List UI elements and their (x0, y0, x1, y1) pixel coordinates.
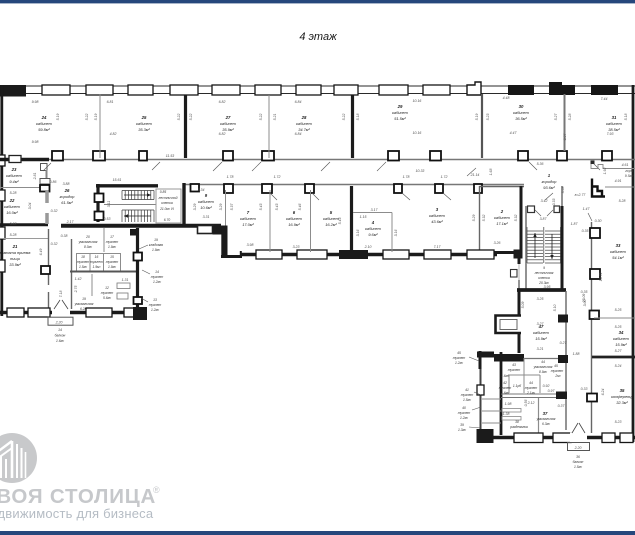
svg-text:5.22: 5.22 (85, 114, 89, 121)
svg-text:1.5м²: 1.5м² (574, 465, 583, 469)
svg-text:10.6м²: 10.6м² (200, 205, 212, 210)
svg-text:4.91: 4.91 (615, 179, 622, 183)
svg-text:туалет: туалет (101, 291, 114, 295)
svg-text:0.86: 0.86 (50, 180, 57, 184)
svg-text:1.1рб: 1.1рб (513, 384, 521, 388)
svg-text:10.16: 10.16 (413, 99, 422, 103)
svg-text:1.2м²: 1.2м² (151, 308, 160, 312)
svg-text:6.81: 6.81 (107, 100, 114, 104)
svg-text:клетка: клетка (161, 201, 173, 205)
svg-text:6.84: 6.84 (295, 100, 302, 104)
svg-text:3.16: 3.16 (394, 230, 398, 237)
svg-text:24: 24 (41, 115, 47, 120)
svg-text:37: 37 (543, 411, 548, 416)
svg-text:7.18: 7.18 (59, 291, 63, 298)
svg-text:39: 39 (460, 423, 464, 427)
svg-text:16.9м²: 16.9м² (288, 222, 300, 227)
svg-text:1.38: 1.38 (503, 412, 510, 416)
svg-text:5.46: 5.46 (298, 204, 302, 211)
svg-text:умывальная: умывальная (78, 240, 98, 244)
svg-text:5.19: 5.19 (475, 114, 479, 121)
svg-text:38: 38 (515, 420, 519, 424)
svg-text:25: 25 (141, 115, 147, 120)
svg-text:туалет: туалет (551, 369, 564, 373)
svg-text:2.1м²: 2.1м² (526, 391, 536, 395)
svg-text:6.84: 6.84 (295, 132, 302, 136)
svg-text:1.5м²: 1.5м² (463, 398, 472, 402)
svg-text:3.42: 3.42 (541, 199, 548, 203)
svg-text:1.6м²: 1.6м² (501, 374, 510, 378)
svg-text:33: 33 (616, 243, 621, 248)
svg-text:15.9м²: 15.9м² (535, 336, 547, 341)
svg-text:30: 30 (519, 104, 524, 109)
svg-text:5.09: 5.09 (521, 302, 525, 309)
svg-text:1.87: 1.87 (571, 222, 579, 226)
svg-text:1.42: 1.42 (75, 277, 82, 281)
svg-text:кладовая: кладовая (149, 243, 163, 247)
svg-text:5.29: 5.29 (472, 215, 476, 222)
svg-text:туалет: туалет (508, 368, 521, 372)
svg-text:5.28: 5.28 (10, 191, 17, 195)
svg-text:9.6м²: 9.6м² (368, 232, 378, 237)
svg-text:59.8м²: 59.8м² (38, 127, 50, 132)
svg-text:27: 27 (225, 115, 231, 120)
svg-text:5.27: 5.27 (615, 349, 623, 353)
svg-text:6.82: 6.82 (219, 132, 226, 136)
svg-text:0.53: 0.53 (104, 217, 111, 221)
svg-text:3.04: 3.04 (28, 203, 32, 210)
svg-text:1.9м²: 1.9м² (108, 245, 117, 249)
svg-text:54.1м²: 54.1м² (612, 255, 624, 260)
svg-text:кабинет: кабинет (429, 213, 446, 218)
svg-text:5.19: 5.19 (94, 114, 98, 121)
svg-text:3.68: 3.68 (561, 187, 565, 194)
svg-text:5.18: 5.18 (624, 114, 628, 121)
svg-text:9: 9 (543, 266, 545, 270)
svg-text:5.10: 5.10 (553, 305, 557, 312)
svg-text:1.9м²: 1.9м² (93, 265, 102, 269)
svg-text:1.9м²: 1.9м² (108, 265, 117, 269)
svg-text:3.26: 3.26 (494, 241, 501, 245)
svg-text:комната приема: комната приема (0, 250, 31, 255)
svg-text:61.5м²: 61.5м² (61, 200, 73, 205)
svg-text:5.28: 5.28 (619, 199, 626, 203)
svg-text:туалет: туалет (499, 386, 512, 390)
svg-text:16.0м²: 16.0м² (6, 210, 18, 215)
svg-text:5.32: 5.32 (482, 215, 486, 222)
svg-text:36.5м²: 36.5м² (515, 116, 527, 121)
svg-text:клетка: клетка (538, 276, 550, 280)
svg-text:5.23: 5.23 (615, 420, 622, 424)
svg-text:3.29: 3.29 (219, 204, 223, 211)
svg-text:5.22: 5.22 (342, 114, 346, 121)
svg-text:17.0м²: 17.0м² (242, 222, 254, 227)
svg-text:конференц-: конференц- (611, 394, 633, 399)
svg-text:умывальная: умывальная (74, 302, 94, 306)
svg-text:кабинет: кабинет (6, 173, 23, 178)
svg-text:1.72: 1.72 (274, 175, 281, 179)
svg-text:1.15: 1.15 (360, 215, 367, 219)
svg-text:0.27: 0.27 (560, 341, 568, 345)
svg-text:7.93: 7.93 (607, 132, 614, 136)
svg-text:9.5м²: 9.5м² (625, 174, 634, 178)
svg-text:3.95: 3.95 (544, 285, 551, 289)
svg-text:14: 14 (58, 328, 62, 332)
svg-text:13: 13 (153, 298, 157, 302)
svg-text:11.53: 11.53 (166, 154, 175, 158)
svg-text:5.6м²: 5.6м² (103, 296, 112, 300)
svg-text:туалет: туалет (90, 260, 103, 264)
svg-text:1.88: 1.88 (573, 352, 580, 356)
svg-text:2.20: 2.20 (55, 321, 63, 325)
svg-text:5.21: 5.21 (273, 114, 277, 121)
svg-text:кабинет: кабинет (36, 121, 53, 126)
svg-text:5.27: 5.27 (554, 113, 558, 121)
svg-text:5.22: 5.22 (189, 114, 193, 121)
svg-text:5.43: 5.43 (338, 218, 342, 225)
svg-text:раздевалка: раздевалка (509, 425, 528, 429)
svg-text:5.19: 5.19 (56, 114, 60, 121)
svg-text:кабинет: кабинет (610, 249, 627, 254)
svg-text:10.16: 10.16 (413, 131, 422, 135)
svg-text:3.98: 3.98 (247, 243, 254, 247)
svg-text:5.22: 5.22 (259, 114, 263, 121)
svg-text:кабинет: кабинет (613, 336, 630, 341)
svg-text:8.9м²: 8.9м² (539, 370, 548, 374)
svg-text:43: 43 (512, 363, 516, 367)
svg-text:1.9м²: 1.9м² (152, 248, 161, 252)
svg-text:2.20: 2.20 (574, 446, 582, 450)
svg-text:1.72: 1.72 (441, 175, 448, 179)
svg-text:1.78: 1.78 (227, 175, 234, 179)
svg-text:0.92: 0.92 (543, 384, 550, 388)
svg-text:туалет: туалет (149, 303, 162, 307)
svg-text:33.9м²: 33.9м² (9, 262, 21, 267)
svg-text:12: 12 (105, 286, 109, 290)
svg-text:0.07: 0.07 (563, 133, 567, 141)
svg-text:коридор: коридор (60, 194, 76, 199)
svg-text:4.47: 4.47 (510, 131, 518, 135)
svg-text:кабинет: кабинет (296, 121, 313, 126)
svg-text:9.4м²: 9.4м² (9, 179, 19, 184)
svg-text:2.75: 2.75 (74, 286, 78, 294)
svg-text:34: 34 (619, 330, 624, 335)
svg-text:1.47: 1.47 (583, 207, 591, 211)
svg-text:1.5м²: 1.5м² (79, 265, 88, 269)
svg-text:кабинет: кабинет (365, 226, 382, 231)
svg-text:0.35: 0.35 (581, 290, 588, 294)
svg-text:3.88: 3.88 (63, 182, 70, 186)
svg-text:16.2м²: 16.2м² (325, 222, 337, 227)
svg-text:0.38: 0.38 (61, 234, 68, 238)
svg-text:3.27: 3.27 (537, 322, 545, 326)
svg-text:кабинет: кабинет (533, 330, 550, 335)
svg-text:1.2м²: 1.2м² (153, 280, 162, 284)
svg-text:3.00: 3.00 (583, 300, 587, 307)
svg-text:22: 22 (9, 198, 15, 203)
svg-text:18: 18 (81, 255, 85, 259)
svg-text:туалет: туалет (106, 260, 119, 264)
svg-text:1.78: 1.78 (403, 175, 410, 179)
svg-text:5.23: 5.23 (486, 114, 490, 121)
svg-text:23: 23 (11, 167, 17, 172)
svg-text:кабинет: кабинет (392, 110, 409, 115)
svg-text:0.35: 0.35 (582, 229, 589, 233)
svg-text:51.5м²: 51.5м² (394, 116, 406, 121)
svg-text:1.3м²: 1.3м² (458, 428, 467, 432)
svg-text:5.25: 5.25 (615, 308, 622, 312)
svg-text:35.3м²: 35.3м² (138, 127, 150, 132)
svg-text:3.25: 3.25 (537, 297, 544, 301)
svg-text:35: 35 (620, 388, 625, 393)
svg-text:40: 40 (462, 406, 466, 410)
svg-text:6.24: 6.24 (601, 389, 605, 396)
svg-text:2.17: 2.17 (66, 220, 75, 224)
svg-text:5.28: 5.28 (10, 222, 17, 226)
svg-text:туалет: туалет (106, 240, 119, 244)
svg-text:5.24: 5.24 (615, 364, 622, 368)
svg-text:43.6м²: 43.6м² (431, 219, 443, 224)
svg-text:1.6м²: 1.6м² (56, 339, 65, 343)
svg-text:горб: горб (625, 169, 634, 173)
svg-text:туалет: туалет (525, 386, 538, 390)
svg-text:туалет: туалет (458, 411, 471, 415)
svg-text:10.33: 10.33 (416, 169, 425, 173)
svg-text:93.6м²: 93.6м² (543, 185, 555, 190)
svg-text:21.14: 21.14 (470, 173, 480, 177)
svg-text:туалет: туалет (453, 356, 466, 360)
svg-text:3.21: 3.21 (537, 347, 544, 351)
svg-text:9.98: 9.98 (32, 100, 39, 104)
svg-text:2.81: 2.81 (33, 173, 37, 181)
svg-text:0.33: 0.33 (581, 387, 588, 391)
svg-text:умывальная: умывальная (533, 365, 553, 369)
svg-text:4.48: 4.48 (503, 96, 510, 100)
svg-text:6.49: 6.49 (39, 249, 43, 256)
svg-text:кабинет: кабинет (513, 110, 530, 115)
svg-text:0.30: 0.30 (595, 219, 602, 223)
svg-text:туалет: туалет (151, 275, 164, 279)
svg-text:7.44: 7.44 (601, 97, 608, 101)
svg-text:в=2.77: в=2.77 (575, 193, 587, 197)
svg-text:4.61: 4.61 (622, 163, 629, 167)
svg-text:5.37: 5.37 (230, 203, 234, 211)
svg-text:6.70: 6.70 (164, 218, 171, 222)
svg-text:туалет: туалет (461, 393, 474, 397)
svg-text:10.73: 10.73 (599, 273, 603, 282)
svg-text:5.22: 5.22 (177, 114, 181, 121)
svg-text:4.82: 4.82 (110, 132, 117, 136)
svg-text:3.31: 3.31 (203, 215, 210, 219)
svg-text:5.43: 5.43 (259, 204, 263, 211)
svg-text:®: ® (153, 485, 160, 495)
svg-text:0.33: 0.33 (552, 199, 556, 206)
svg-text:2.10: 2.10 (364, 245, 372, 249)
svg-text:15.61: 15.61 (113, 178, 122, 182)
svg-text:26: 26 (64, 188, 70, 193)
svg-text:32.3м²: 32.3м² (616, 400, 628, 405)
svg-text:1.2м²: 1.2м² (460, 416, 469, 420)
svg-text:кабинет: кабинет (286, 216, 303, 221)
svg-text:41: 41 (465, 388, 469, 392)
svg-text:3.87: 3.87 (540, 217, 548, 221)
svg-text:45: 45 (554, 364, 558, 368)
svg-text:балкон: балкон (573, 460, 584, 464)
svg-text:3.34: 3.34 (198, 188, 205, 192)
svg-text:1.98: 1.98 (505, 402, 512, 406)
svg-text:3.16: 3.16 (356, 230, 360, 237)
svg-text:лестничной: лестничной (158, 196, 178, 200)
svg-text:29: 29 (397, 104, 403, 109)
svg-text:3.23: 3.23 (293, 245, 300, 249)
svg-text:кабинет: кабинет (198, 199, 215, 204)
svg-text:0.97: 0.97 (548, 389, 556, 393)
svg-text:44: 44 (529, 381, 533, 385)
svg-text:0.32: 0.32 (51, 242, 58, 246)
svg-text:2м²: 2м² (554, 374, 561, 378)
svg-text:1.31: 1.31 (122, 278, 129, 282)
svg-text:45: 45 (457, 351, 461, 355)
svg-text:туалет: туалет (77, 260, 90, 264)
svg-text:14: 14 (155, 270, 159, 274)
svg-text:21.0м² VI: 21.0м² VI (159, 207, 174, 211)
svg-text:3.11: 3.11 (107, 201, 111, 208)
svg-text:16: 16 (95, 255, 99, 259)
svg-text:17.1м²: 17.1м² (496, 221, 508, 226)
svg-text:1.2м²: 1.2м² (455, 361, 464, 365)
svg-text:31: 31 (612, 115, 617, 120)
svg-text:кабинет: кабинет (4, 204, 21, 209)
svg-text:1.6м²: 1.6м² (501, 391, 510, 395)
svg-text:ТВОЯ СТОЛИЦА: ТВОЯ СТОЛИЦА (0, 485, 156, 508)
svg-text:8.0м²: 8.0м² (84, 245, 93, 249)
svg-text:0.37: 0.37 (558, 404, 566, 408)
svg-text:3.29: 3.29 (193, 204, 197, 211)
svg-text:17: 17 (110, 235, 114, 239)
svg-text:недвижимость для бизнеса: недвижимость для бизнеса (0, 506, 154, 521)
svg-text:кабинет: кабинет (606, 121, 623, 126)
svg-text:умывальная: умывальная (536, 417, 556, 421)
svg-text:коридор: коридор (542, 179, 558, 184)
svg-text:6.82: 6.82 (219, 100, 226, 104)
svg-text:5.43: 5.43 (275, 204, 279, 211)
svg-text:42: 42 (503, 381, 507, 385)
svg-text:5.28: 5.28 (10, 233, 17, 237)
svg-text:9.98: 9.98 (32, 140, 39, 144)
svg-text:0.56: 0.56 (524, 400, 528, 407)
svg-text:кабинет: кабинет (136, 121, 153, 126)
svg-text:лестничная: лестничная (534, 271, 554, 275)
svg-text:кабинет: кабинет (494, 215, 511, 220)
svg-text:21: 21 (12, 244, 18, 249)
svg-text:кабинет: кабинет (220, 121, 237, 126)
svg-text:6.3м²: 6.3м² (542, 422, 551, 426)
svg-text:1.92: 1.92 (603, 168, 607, 175)
svg-text:5.18: 5.18 (356, 114, 360, 121)
svg-text:0.85: 0.85 (160, 190, 167, 194)
svg-text:0.32: 0.32 (51, 209, 58, 213)
svg-text:28: 28 (301, 115, 307, 120)
svg-text:36: 36 (576, 455, 580, 459)
svg-text:44: 44 (541, 360, 545, 364)
svg-text:5.28: 5.28 (568, 114, 572, 121)
svg-text:19: 19 (154, 238, 158, 242)
svg-text:3.17: 3.17 (371, 208, 379, 212)
svg-text:20: 20 (85, 235, 90, 239)
svg-text:5.36: 5.36 (537, 162, 544, 166)
svg-text:5.32: 5.32 (514, 215, 518, 222)
svg-text:7.17: 7.17 (434, 245, 442, 249)
svg-text:4 этаж: 4 этаж (299, 31, 337, 43)
svg-text:1.68: 1.68 (489, 169, 493, 176)
svg-text:кабинет: кабинет (240, 216, 257, 221)
svg-text:балкон: балкон (55, 334, 66, 338)
svg-text:пищи: пищи (10, 256, 21, 261)
svg-text:15: 15 (110, 255, 114, 259)
svg-text:19: 19 (82, 297, 86, 301)
svg-text:15.9м²: 15.9м² (615, 342, 627, 347)
svg-text:5.25: 5.25 (615, 325, 622, 329)
